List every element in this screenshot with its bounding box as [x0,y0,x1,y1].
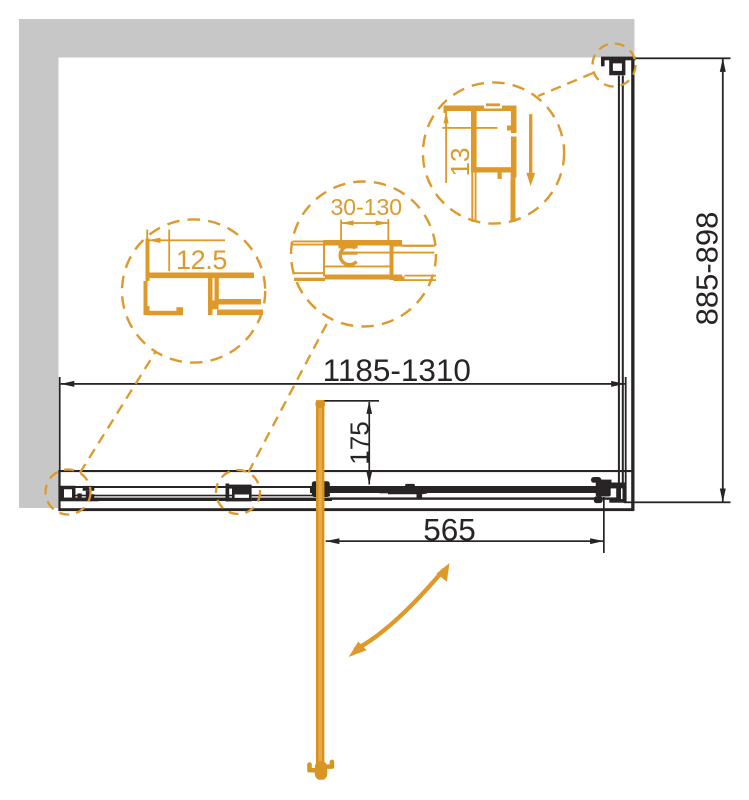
svg-text:885-898: 885-898 [689,212,724,326]
svg-text:13: 13 [445,148,475,177]
svg-text:175: 175 [344,421,374,464]
svg-text:565: 565 [423,511,476,547]
svg-text:12.5: 12.5 [176,245,227,275]
svg-text:30-130: 30-130 [330,194,402,220]
svg-text:1185-1310: 1185-1310 [323,352,471,388]
